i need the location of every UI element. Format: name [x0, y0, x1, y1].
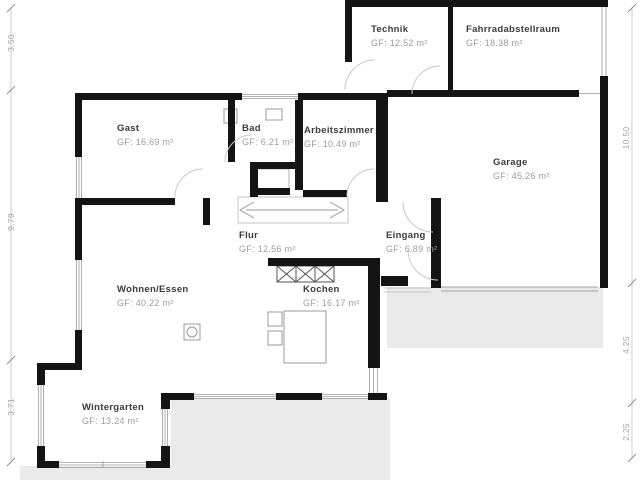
dim-right-3: 2.25 — [621, 413, 633, 451]
kitchen-island — [284, 311, 326, 363]
room-name: Gast — [117, 122, 174, 135]
room-label-wohnen-essen: Wohnen/Essen GF: 40.22 m² — [117, 283, 189, 310]
room-label-kochen: Kochen GF: 16.17 m² — [303, 283, 360, 310]
door-arbeitszimmer — [347, 169, 374, 196]
room-area: GF: 40.22 m² — [117, 297, 189, 310]
room-label-garage: Garage GF: 45.26 m² — [493, 156, 550, 183]
room-area: GF: 45.26 m² — [493, 170, 550, 183]
room-area: GF: 13.24 m² — [82, 415, 144, 428]
room-area: GF: 6.89 m² — [386, 243, 437, 256]
room-area: GF: 10.49 m² — [304, 138, 374, 151]
room-area: GF: 18.38 m² — [466, 37, 560, 50]
room-name: Bad — [242, 122, 293, 135]
room-label-arbeitszimmer: Arbeitszimmer GF: 10.49 m² — [304, 124, 374, 151]
door-gast — [175, 169, 203, 197]
door-technik — [345, 60, 375, 90]
living-fixture — [184, 324, 200, 340]
room-label-fahrradabstellraum: Fahrradabstellraum GF: 18.38 m² — [466, 23, 560, 50]
kitchen-cabinet — [268, 331, 282, 345]
room-label-bad: Bad GF: 6.21 m² — [242, 122, 293, 149]
room-label-technik: Technik GF: 12.52 m² — [371, 23, 428, 50]
room-name: Garage — [493, 156, 550, 169]
room-name: Flur — [239, 229, 296, 242]
room-name: Technik — [371, 23, 428, 36]
room-label-wintergarten: Wintergarten GF: 13.24 m² — [82, 401, 144, 428]
dim-left-2: 9.79 — [6, 203, 18, 241]
room-name: Kochen — [303, 283, 360, 296]
floor-plan: Technik GF: 12.52 m² Fahrradabstellraum … — [0, 0, 640, 480]
windows — [39, 7, 607, 468]
bath-wc — [266, 109, 282, 120]
room-area: GF: 16.17 m² — [303, 297, 360, 310]
dim-right-2: 4.25 — [621, 326, 633, 364]
room-name: Arbeitszimmer — [304, 124, 374, 137]
room-area: GF: 12.56 m² — [239, 243, 296, 256]
hall-wardrobe — [238, 197, 348, 223]
room-name: Wohnen/Essen — [117, 283, 189, 296]
kitchen-counter-hatch — [277, 266, 334, 282]
room-area: GF: 16.69 m² — [117, 136, 174, 149]
room-area: GF: 6.21 m² — [242, 136, 293, 149]
dim-right-1: 10.50 — [621, 119, 633, 157]
room-label-gast: Gast GF: 16.69 m² — [117, 122, 174, 149]
door-eingang-flur — [403, 202, 433, 232]
dim-left-3: 3.71 — [6, 388, 18, 426]
room-area: GF: 12.52 m² — [371, 37, 428, 50]
kitchen-cabinet — [268, 312, 282, 326]
door-annex-passage — [412, 66, 440, 94]
room-name: Wintergarten — [82, 401, 144, 414]
room-label-flur: Flur GF: 12.56 m² — [239, 229, 296, 256]
dim-left-1: 3.50 — [6, 24, 18, 62]
shelf — [256, 169, 289, 190]
room-label-eingang: Eingang GF: 6.89 m² — [386, 229, 437, 256]
room-name: Eingang — [386, 229, 437, 242]
room-name: Fahrradabstellraum — [466, 23, 560, 36]
walls — [37, 0, 608, 468]
